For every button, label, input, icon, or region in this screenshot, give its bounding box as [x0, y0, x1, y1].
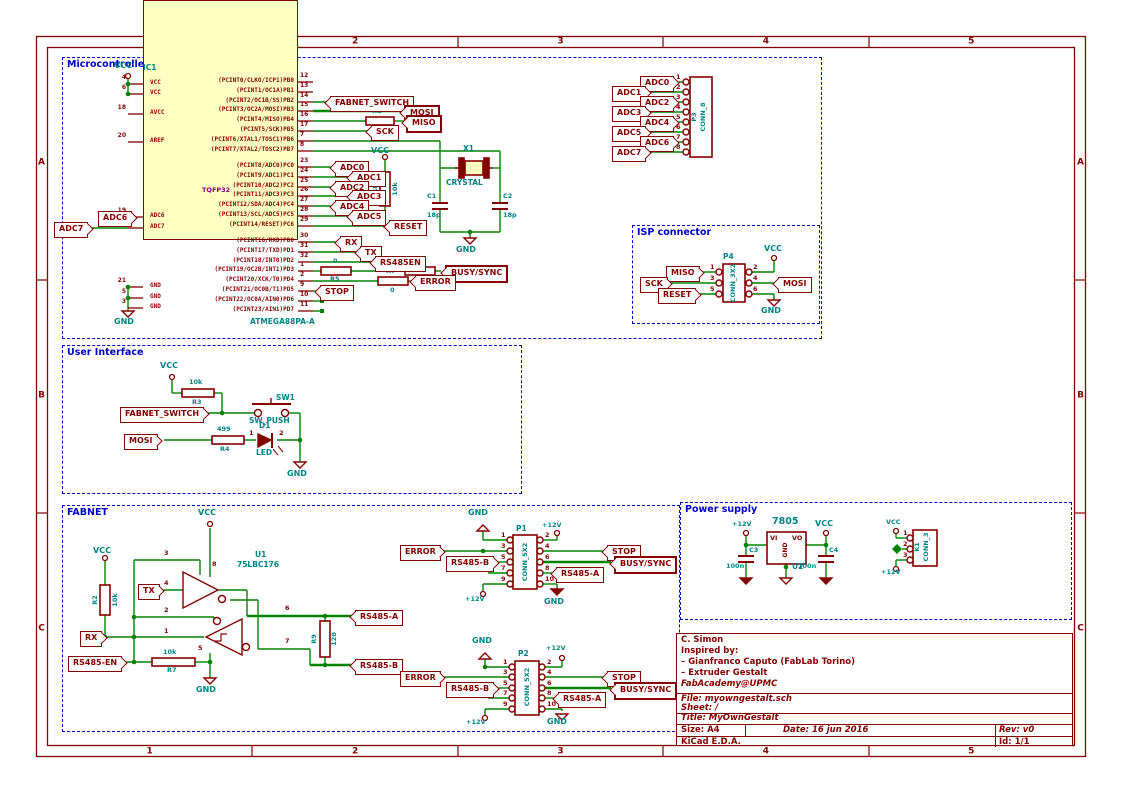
tb-author: C. Simon	[681, 636, 723, 645]
frame-zone-letter: C	[1077, 624, 1084, 633]
u1-pin: 4	[164, 580, 169, 587]
p2-pin: 9	[503, 701, 508, 708]
r5-value: 0	[333, 258, 338, 265]
mcu-value: ATMEGA88PA-A	[250, 318, 315, 326]
tb-credit1: – Gianfranco Caputo (FabLab Torino)	[681, 658, 855, 667]
mcu-pin-number: 10	[300, 292, 308, 298]
frame-zone-number: 3	[557, 37, 563, 46]
mcu-pin-number: 13	[300, 83, 308, 89]
mcu-pin-name: (PCINT2/OC1B/SS)PB2	[225, 98, 294, 104]
mcu-pin-name: (PCINT19/OC2B/INT1)PD3	[215, 267, 294, 273]
global-label-STOP[interactable]: STOP	[320, 285, 354, 301]
global-label-RS485-B[interactable]: RS485-B	[446, 556, 494, 572]
global-label-RS485-A[interactable]: RS485-A	[355, 610, 403, 626]
p4-pin: 1	[710, 264, 715, 271]
p1-pin: 1	[501, 532, 506, 539]
global-label-RS485-B[interactable]: RS485-B	[446, 682, 494, 698]
mcu-pin-name: (PCINT4/MISO)PB4	[236, 117, 294, 123]
title-block-divider	[745, 724, 746, 736]
led-pin: 2	[279, 430, 284, 437]
c3-ref: C3	[749, 547, 758, 554]
r8-value: 10k	[392, 182, 399, 195]
mcu-pin-number: 12	[300, 73, 308, 79]
mcu-pin-number: 30	[300, 233, 308, 239]
u2-pin-gnd: GND	[783, 543, 789, 558]
mcu-pin-name: (PCINT9/ADC1)PC1	[236, 173, 294, 179]
mcu-pin-number: 4	[114, 75, 126, 81]
global-label-RS485-EN[interactable]: RS485-EN	[68, 656, 122, 672]
tb-app: KiCad E.D.A.	[681, 738, 741, 747]
mcu-pin-number: 2	[300, 272, 304, 278]
p2-pin: 8	[547, 690, 552, 697]
global-label-ADC6[interactable]: ADC6	[98, 211, 132, 227]
r5-ref: R5	[330, 276, 340, 283]
r7-value: 0	[390, 287, 395, 294]
global-label-MISO[interactable]: MISO	[666, 266, 700, 282]
global-label-ERROR[interactable]: ERROR	[400, 545, 441, 561]
global-label-RX[interactable]: RX	[80, 631, 102, 647]
section-title-fabnet: FABNET	[67, 507, 108, 518]
frame-zone-letter: B	[1077, 392, 1084, 401]
title-block-divider	[995, 724, 996, 747]
u1-pin: 3	[164, 550, 169, 557]
tb-rev: Rev: v0	[999, 726, 1034, 735]
gnd-label: GND	[547, 718, 567, 726]
u1-pin: 5	[198, 645, 203, 652]
r3-ref: R3	[192, 399, 202, 406]
p2-pin: 5	[503, 680, 508, 687]
p4-pin: 4	[753, 275, 758, 282]
mcu-pin-name: (PCINT18/INT0)PD2	[233, 258, 294, 264]
p1-value: CONN_5X2	[522, 543, 529, 581]
p1-pin: 8	[545, 565, 550, 572]
c2-value: 18p	[503, 212, 517, 219]
r9-ref: R9	[311, 634, 318, 644]
mcu-pin-name: GND	[150, 304, 161, 310]
mcu-pin-name: (PCINT0/CLKO/ICP1)PB0	[218, 78, 294, 84]
d1-ref: D1	[259, 422, 270, 430]
k1-value: CONN_3	[923, 533, 930, 562]
r2-value: 10k	[112, 593, 119, 606]
mcu-pin-number: 27	[300, 197, 308, 203]
c4-value: 100n	[798, 563, 816, 570]
p4-pin: 3	[710, 275, 715, 282]
global-label-FABNET_SWITCH[interactable]: FABNET_SWITCH	[120, 407, 204, 423]
gnd-label: GND	[761, 307, 781, 315]
mcu-pin-name: ADC6	[150, 213, 164, 219]
mcu-pin-number: 6	[114, 85, 126, 91]
mcu-pin-name: (PCINT23/AIN1)PD7	[233, 307, 294, 313]
frame-zone-letter: C	[38, 624, 45, 633]
mcu-pin-name: (PCINT10/ADC2)PC2	[233, 183, 294, 189]
mcu-pin-number: 11	[300, 302, 308, 308]
mcu-pin-name: AREF	[150, 138, 164, 144]
mcu-pin-number: 16	[300, 112, 308, 118]
mcu-pin-name: VCC	[150, 90, 161, 96]
p3-value: CONN_8	[700, 103, 707, 132]
gnd-label: GND	[468, 509, 488, 517]
p4-value: CONN_3X2	[730, 264, 737, 302]
frame-zone-number: 4	[763, 37, 769, 46]
frame-zone-number: 3	[557, 747, 563, 756]
global-label-MOSI[interactable]: MOSI	[124, 434, 158, 450]
r4-ref: R4	[220, 446, 230, 453]
global-label-RS485-A[interactable]: RS485-A	[556, 567, 604, 583]
u1-pin: 7	[285, 638, 290, 645]
r4-value: 499	[217, 426, 231, 433]
title-block: C. Simon Inspired by: – Gianfranco Caput…	[676, 633, 1073, 746]
k1-pin: 3	[903, 552, 908, 559]
crystal-value: CRYSTAL	[446, 179, 483, 187]
global-label-SCK[interactable]: SCK	[371, 125, 399, 141]
u1-pin: 2	[164, 607, 169, 614]
global-label-RS485EN[interactable]: RS485EN	[375, 256, 426, 272]
global-label-RS485-B[interactable]: RS485-B	[355, 659, 403, 675]
frame-zone-letter: A	[1077, 159, 1084, 168]
section-title-power-supply: Power supply	[685, 504, 757, 515]
mcu-pin-number: 7	[300, 132, 304, 138]
global-label-RS485-A[interactable]: RS485-A	[558, 692, 606, 708]
mcu-pin-name: (PCINT3/OC2A/MOSI)PB3	[218, 107, 294, 113]
p2-value: CONN_5X2	[524, 668, 531, 706]
p1-pin: 4	[545, 543, 550, 550]
k1-ref: K1	[914, 542, 921, 552]
p1-pin: 2	[545, 532, 550, 539]
k1-pin: 2	[903, 541, 908, 548]
mcu-pin-name: (PCINT12/SDA/ADC4)PC4	[218, 202, 294, 208]
global-label-BUSY/SYNC[interactable]: BUSY/SYNC	[614, 682, 677, 700]
global-label-ADC7[interactable]: ADC7	[612, 146, 646, 162]
mcu-pin-name: VCC	[150, 80, 161, 86]
vcc-label: VCC	[886, 519, 901, 526]
mcu-pin-number: 15	[300, 102, 308, 108]
gnd-label: GND	[544, 598, 564, 606]
p1-pin: 3	[501, 543, 506, 550]
mcu-pin-number: 18	[114, 105, 126, 111]
c4-ref: C4	[829, 547, 838, 554]
section-title-microcontroller: Microcontroller	[67, 59, 149, 70]
mcu-pin-name: (PCINT16/RXD)PD0	[236, 238, 294, 244]
mcu-pin-number: 23	[300, 158, 308, 164]
led-pin: 1	[249, 430, 254, 437]
gnd-label: GND	[456, 246, 476, 254]
u1-value: 75LBC176	[237, 561, 279, 569]
global-label-ADC5[interactable]: ADC5	[352, 210, 386, 226]
global-label-ADC7[interactable]: ADC7	[54, 222, 88, 238]
p1-pin: 9	[501, 576, 506, 583]
mcu-pin-number: 8	[300, 142, 304, 148]
mcu-pin-number: 26	[300, 187, 308, 193]
global-label-ERROR[interactable]: ERROR	[415, 275, 456, 291]
mcu-pin-name: (PCINT1/OC1A)PB1	[236, 88, 294, 94]
p12v-label: +12V	[546, 645, 566, 652]
u2-value: 7805	[772, 517, 798, 527]
mcu-pin-name: GND	[150, 283, 161, 289]
p4-pin: 2	[753, 264, 758, 271]
frame-zone-number: 1	[147, 747, 153, 756]
mcu-pin-name: (PCINT8/ADC0)PC0	[236, 163, 294, 169]
mcu-pin-number: 9	[300, 282, 304, 288]
c2-ref: C2	[503, 193, 512, 200]
mcu-pin-number: 3	[114, 299, 126, 305]
r7f-value: 10k	[163, 649, 176, 656]
mcu-pin-number: 28	[300, 207, 308, 213]
tb-size: Size: A4	[681, 726, 720, 735]
vcc-label: VCC	[764, 245, 782, 253]
c3-value: 100n	[726, 563, 744, 570]
mcu-pin-number: 24	[300, 168, 308, 174]
p4-pin: 6	[753, 286, 758, 293]
mcu-pin-name: (PCINT14/RESET)PC6	[229, 222, 294, 228]
u1-pin: 8	[212, 561, 217, 568]
section-title-isp-connector: ISP connector	[637, 227, 711, 238]
mcu-pin-number: 31	[300, 243, 308, 249]
frame-zone-letter: A	[38, 159, 45, 168]
mcu-pin-name: (PCINT17/TXD)PD1	[236, 248, 294, 254]
r2-ref: R2	[92, 595, 99, 605]
p1-pin: 5	[501, 554, 506, 561]
gnd-label: GND	[472, 637, 492, 645]
vcc-label: VCC	[371, 147, 389, 155]
p2-pin: 6	[547, 680, 552, 687]
u2-pin-vi: VI	[770, 535, 777, 542]
mcu-pin-number: 17	[300, 122, 308, 128]
mcu-pin-number: 1	[300, 262, 304, 268]
frame-zone-letter: B	[38, 392, 45, 401]
mcu-package: TQFP32	[202, 187, 230, 194]
frame-zone-number: 2	[352, 747, 358, 756]
c1-ref: C1	[427, 193, 436, 200]
global-label-ERROR[interactable]: ERROR	[400, 671, 441, 687]
p12v-label: +12V	[542, 522, 562, 529]
vcc-label: VCC	[93, 547, 111, 555]
mcu-pin-number: 32	[300, 253, 308, 259]
global-label-RESET[interactable]: RESET	[389, 220, 427, 236]
global-label-RESET[interactable]: RESET	[658, 288, 696, 304]
r3-value: 10k	[189, 379, 202, 386]
p2-pin: 3	[503, 669, 508, 676]
vcc-label: VCC	[160, 362, 178, 370]
u2-pin-vo: VO	[792, 535, 802, 542]
tb-org: FabAcademy@UPMC	[681, 680, 777, 689]
mcu-pin-name: ADC7	[150, 224, 164, 230]
tb-inspired: Inspired by:	[681, 647, 738, 656]
mcu-pin-name: (PCINT22/OC0A/AIN0)PD6	[215, 297, 294, 303]
r7f-ref: R7	[167, 667, 177, 674]
p2-pin: 7	[503, 690, 508, 697]
c1-value: 18p	[427, 212, 441, 219]
mcu-pin-name: (PCINT11/ADC3)PC3	[233, 192, 294, 198]
global-label-TX[interactable]: TX	[138, 584, 160, 600]
global-label-MISO[interactable]: MISO	[406, 115, 442, 133]
mcu-pin-name: (PCINT20/XCK/T0)PD4	[225, 277, 294, 283]
p2-ref: P2	[518, 650, 529, 658]
p1-ref: P1	[516, 525, 527, 533]
vcc-label: VCC	[114, 62, 132, 70]
mcu-pin-name: AVCC	[150, 110, 164, 116]
vcc-label: VCC	[198, 509, 216, 517]
p2-pin: 2	[547, 659, 552, 666]
schematic-sheet: 1122334455AABBCCMicrocontrollerUser Inte…	[0, 0, 1122, 794]
gnd-label: GND	[287, 470, 307, 478]
u1-pin: 6	[285, 605, 290, 612]
mcu-pin-number: 29	[300, 217, 308, 223]
p4-pin: 5	[710, 286, 715, 293]
k1-pin: 1	[903, 530, 908, 537]
p3-ref: P3	[691, 112, 698, 121]
frame-zone-number: 5	[968, 37, 974, 46]
vcc-label: VCC	[815, 520, 833, 528]
p2-pin: 4	[547, 669, 552, 676]
mcu-pin-number: 21	[114, 278, 126, 284]
global-label-BUSY/SYNC[interactable]: BUSY/SYNC	[614, 556, 677, 574]
p12v-label: +12V	[466, 719, 486, 726]
gnd-label: GND	[114, 318, 134, 326]
tb-date: Date: 16 jun 2016	[783, 726, 868, 735]
mcu-pin-name: GND	[150, 294, 161, 300]
frame-zone-number: 5	[968, 747, 974, 756]
tb-credit2: – Extruder Gestalt	[681, 669, 767, 678]
crystal-ref: X1	[463, 145, 474, 153]
mcu-pin-number: 25	[300, 178, 308, 184]
tb-id: Id: 1/1	[999, 738, 1030, 747]
tb-sheet: Sheet: /	[681, 704, 718, 713]
r9-value: 120	[331, 632, 338, 646]
p12v-label: +12V	[881, 569, 901, 576]
p1-pin: 6	[545, 554, 550, 561]
p1-pin: 7	[501, 565, 506, 572]
mcu-pin-number: 5	[114, 289, 126, 295]
u1-ref: U1	[255, 551, 266, 559]
u1-pin: 1	[164, 628, 169, 635]
p2-pin: 1	[503, 659, 508, 666]
section-isp-connector: ISP connector	[632, 225, 820, 324]
p12v-label: +12V	[732, 521, 752, 528]
mcu-pin-number: 14	[300, 93, 308, 99]
sw1-ref: SW1	[276, 394, 295, 402]
mcu-pin-number: 20	[114, 133, 126, 139]
tb-title: Title: MyOwnGestalt	[681, 714, 779, 723]
gnd-label: GND	[196, 686, 216, 694]
mcu-pin-name: (PCINT13/SCL/ADC5)PC5	[218, 212, 294, 218]
mcu-pin-name: (PCINT7/XTAL2/TOSC2)PB7	[211, 147, 294, 153]
mcu-pin-name: (PCINT6/XTAL1/TOSC1)PB6	[211, 137, 294, 143]
frame-zone-number: 2	[352, 37, 358, 46]
mcu-ref: IC1	[143, 64, 157, 72]
global-label-MOSI[interactable]: MOSI	[778, 277, 812, 293]
frame-zone-number: 4	[763, 747, 769, 756]
p4-ref: P4	[723, 253, 734, 261]
mcu-pin-name: (PCINT21/OC0B/T1)PD5	[222, 287, 294, 293]
d1-value: LED	[256, 449, 272, 457]
p12v-label: +12V	[465, 596, 485, 603]
section-title-user-interface: User Interface	[67, 347, 143, 358]
mcu-pin-name: (PCINT5/SCK)PB5	[240, 127, 294, 133]
